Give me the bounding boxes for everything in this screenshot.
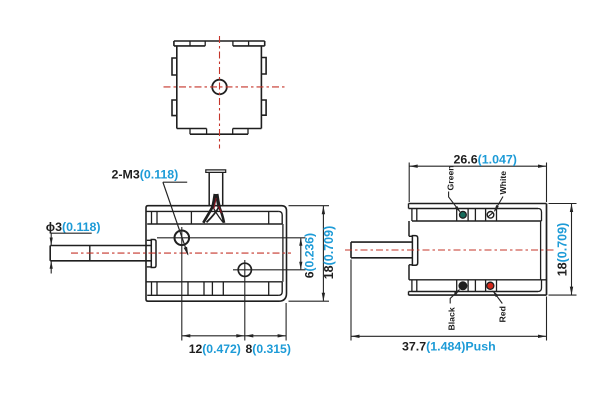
svg-text:37.7(1.484)Push: 37.7(1.484)Push (402, 339, 496, 353)
svg-text:Black: Black (446, 307, 456, 330)
svg-text:26.6(1.047): 26.6(1.047) (454, 152, 517, 166)
svg-text:Red: Red (497, 306, 507, 322)
svg-text:2-M3(0.118): 2-M3(0.118) (112, 167, 179, 181)
svg-text:18(0.709): 18(0.709) (556, 223, 570, 277)
svg-text:6(0.236): 6(0.236) (303, 233, 317, 278)
svg-text:12(0.472): 12(0.472) (189, 342, 241, 356)
svg-text:18(0.709): 18(0.709) (322, 226, 336, 280)
svg-text:White: White (498, 171, 508, 195)
svg-text:Green: Green (445, 165, 455, 190)
svg-text:ϕ3(0.118): ϕ3(0.118) (46, 220, 101, 234)
svg-text:8(0.315): 8(0.315) (246, 342, 291, 356)
